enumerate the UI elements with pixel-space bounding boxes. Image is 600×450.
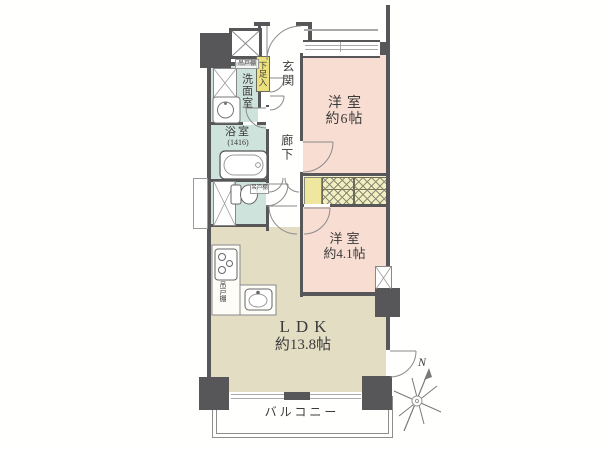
door-gap bbox=[266, 107, 269, 129]
compass-north-label: N bbox=[418, 356, 426, 370]
cupboard-label-washroom: 吊戸棚 bbox=[235, 59, 259, 69]
ldk-size: 約13.8帖 bbox=[248, 337, 358, 354]
bedroom41-name: 洋室 bbox=[309, 232, 384, 247]
door-gap bbox=[386, 350, 390, 377]
entrance-door-arc bbox=[267, 26, 301, 60]
cupboard-label-toilet: 吊戸棚 bbox=[250, 184, 269, 194]
balcony-railing-top bbox=[304, 29, 378, 31]
closet-hanger-pipe bbox=[323, 189, 386, 190]
window-line bbox=[305, 45, 378, 46]
window-center-frame bbox=[284, 392, 310, 400]
washroom-label: 洗面室 bbox=[240, 73, 253, 125]
ldk-name: LDK bbox=[254, 317, 358, 337]
pillar bbox=[375, 288, 400, 317]
toilet-door-arc bbox=[266, 184, 288, 206]
entrance-label: 玄関 bbox=[280, 60, 294, 106]
pillar bbox=[200, 33, 231, 68]
closet-small-box bbox=[304, 177, 322, 205]
bathroom-label: 浴室 bbox=[211, 126, 265, 139]
wall-segment bbox=[209, 122, 267, 125]
door-gap bbox=[304, 204, 330, 207]
wall-segment bbox=[258, 92, 261, 108]
pipe-space-box bbox=[375, 266, 392, 290]
washer-space-box bbox=[213, 68, 237, 98]
elevator-shaft-box bbox=[229, 28, 262, 59]
meter-box bbox=[193, 178, 208, 229]
ldk-label: LDK 約13.8帖 bbox=[248, 317, 358, 354]
pipe-space-box bbox=[213, 181, 236, 226]
floor-plan: 下足入 bbox=[0, 0, 600, 450]
cupboard-label-kitchen: 吊戸棚 bbox=[219, 281, 226, 315]
window-line bbox=[305, 49, 378, 50]
hallway-label: 廊下 bbox=[279, 134, 293, 172]
door-gap bbox=[300, 141, 303, 172]
wall-segment bbox=[254, 22, 270, 26]
bedroom41-label: 洋室 約4.1帖 bbox=[305, 232, 384, 262]
window-mullion bbox=[340, 42, 341, 52]
wall-segment bbox=[308, 22, 312, 42]
bedroom6-name: 洋室 bbox=[310, 96, 384, 112]
wall-segment bbox=[300, 173, 303, 297]
wall-segment bbox=[386, 42, 390, 396]
outside-door-arc bbox=[390, 351, 416, 377]
wall-segment bbox=[300, 173, 389, 176]
compass-north-arrow bbox=[424, 368, 432, 380]
closet-hatched-right bbox=[354, 177, 389, 205]
balcony-label: バルコニー bbox=[240, 406, 364, 420]
bedroom6-label: 洋室 約6帖 bbox=[305, 96, 384, 128]
bathroom-size-label: (1416) bbox=[211, 138, 265, 147]
pillar bbox=[199, 377, 229, 410]
bedroom41-size: 約4.1帖 bbox=[305, 247, 384, 262]
pillar bbox=[362, 376, 392, 410]
closet-hatched-left bbox=[322, 177, 354, 205]
wall-segment bbox=[386, 5, 390, 45]
compass-rose-icon bbox=[394, 368, 441, 431]
bedroom6-size: 約6帖 bbox=[305, 112, 384, 128]
